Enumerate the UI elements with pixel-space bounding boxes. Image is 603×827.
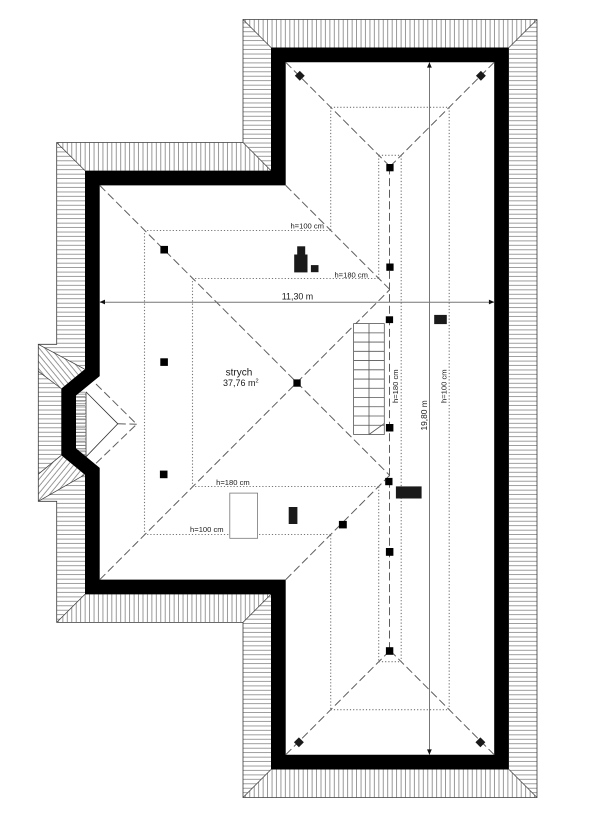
svg-text:h=100 cm: h=100 cm	[190, 525, 224, 534]
svg-text:19,80 m: 19,80 m	[419, 400, 429, 430]
svg-text:h=100 cm: h=100 cm	[290, 221, 324, 230]
svg-text:h=180 cm: h=180 cm	[334, 271, 368, 280]
svg-text:h=180 cm: h=180 cm	[216, 478, 250, 487]
svg-text:h=100 cm: h=100 cm	[440, 369, 449, 403]
svg-text:11,30 m: 11,30 m	[282, 292, 313, 302]
svg-text:37,76 m2: 37,76 m2	[223, 378, 259, 388]
svg-text:h=180 cm: h=180 cm	[391, 369, 400, 403]
svg-text:strych: strych	[226, 367, 253, 378]
